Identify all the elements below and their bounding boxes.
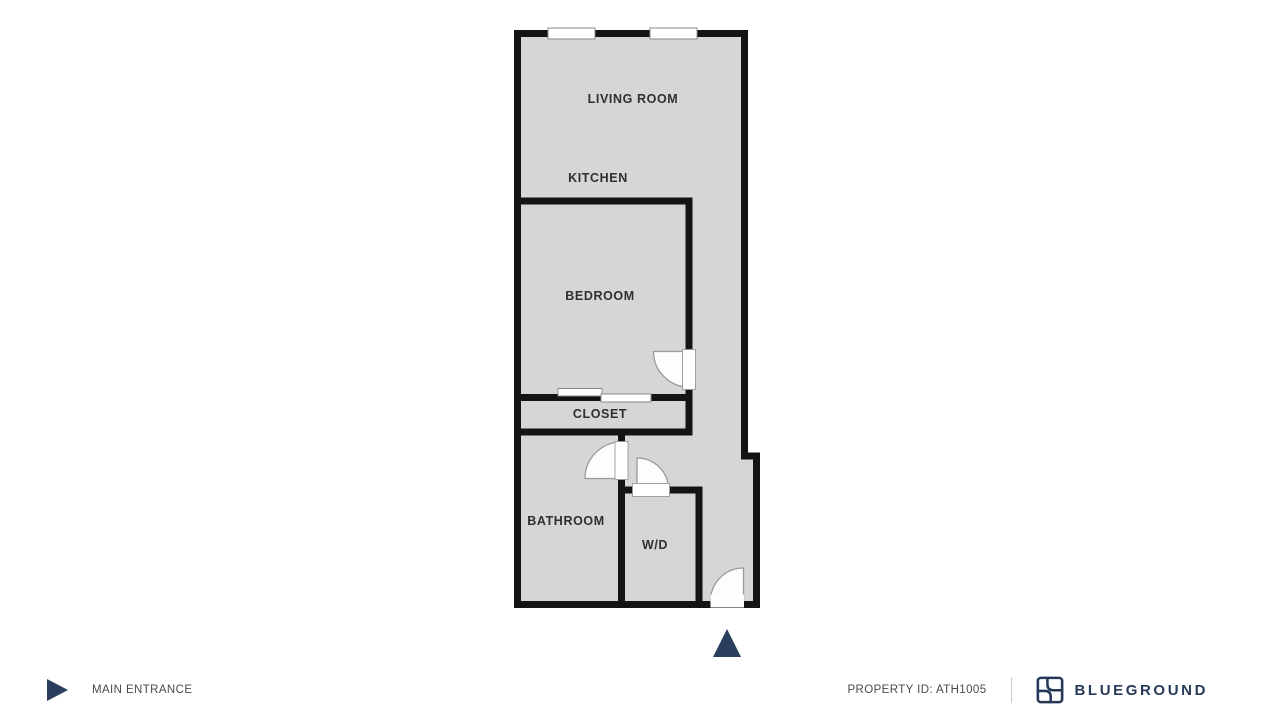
brand-logo: BLUEGROUND (1036, 676, 1209, 704)
sliding-door-panel-outer (558, 389, 602, 397)
entrance-marker-icon (713, 629, 741, 657)
room-label-living-room: LIVING ROOM (588, 92, 679, 106)
bathroom-door-leaf (615, 442, 628, 480)
property-id-label: PROPERTY ID: ATH1005 (847, 684, 986, 696)
floor-plan: LIVING ROOM KITCHEN BEDROOM CLOSET BATHR… (0, 0, 1280, 660)
room-label-wd: W/D (642, 538, 668, 552)
blueground-logo-icon (1036, 676, 1064, 704)
room-label-closet: CLOSET (573, 407, 627, 421)
brand-name: BLUEGROUND (1075, 682, 1209, 699)
entrance-arrow-icon (44, 677, 70, 703)
footer-divider (1011, 677, 1012, 703)
wd-door-leaf (633, 484, 670, 497)
room-label-kitchen: KITCHEN (568, 171, 628, 185)
window-right (650, 28, 697, 39)
main-entrance-label: MAIN ENTRANCE (92, 684, 192, 696)
main-entrance-legend: MAIN ENTRANCE (44, 677, 192, 703)
footer: MAIN ENTRANCE PROPERTY ID: ATH1005 BLUEG… (44, 672, 1208, 708)
sliding-door-panel-inner (601, 394, 651, 402)
footer-right-group: PROPERTY ID: ATH1005 BLUEGROUND (847, 676, 1208, 704)
room-label-bedroom: BEDROOM (565, 289, 634, 303)
bedroom-door-leaf (683, 350, 696, 390)
window-left (548, 28, 595, 39)
room-label-bathroom: BATHROOM (527, 514, 604, 528)
entrance-door-opening (711, 595, 745, 608)
